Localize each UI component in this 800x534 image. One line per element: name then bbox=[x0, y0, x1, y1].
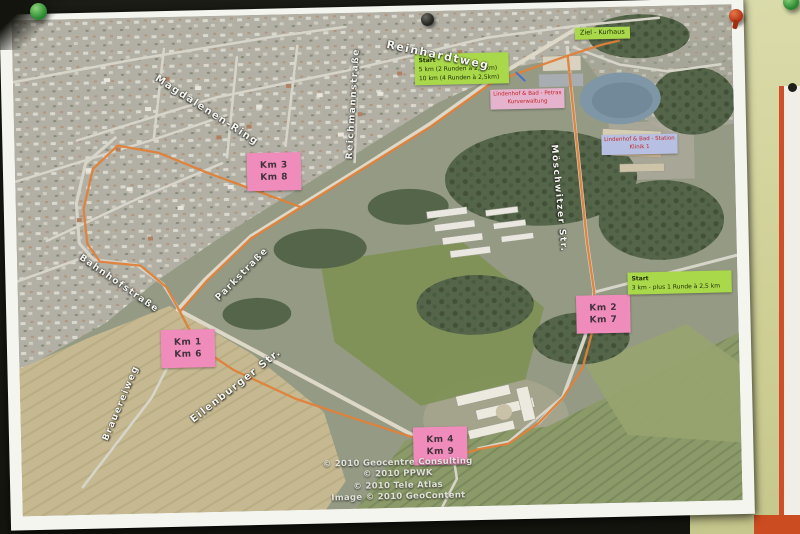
km-marker-line: Km 7 bbox=[589, 315, 617, 326]
imagery-credits: © 2010 Geocentre Consulting © 2010 PPWK … bbox=[310, 456, 487, 506]
poi-marker-kurverwaltung: Lindenhof & Bad - Petras Kurverwaltung bbox=[490, 88, 564, 110]
km-marker-line: Km 9 bbox=[426, 447, 454, 458]
adjacent-paper-sheet bbox=[779, 86, 800, 516]
km-marker-1-6: Km 1 Km 6 bbox=[161, 329, 216, 368]
start-distance-2: 10 km (4 Runden à 2,5km) bbox=[419, 72, 505, 83]
km-marker-2-7: Km 2 Km 7 bbox=[576, 295, 631, 334]
km-marker-line: Km 8 bbox=[260, 172, 288, 183]
black-pushpin-top-center bbox=[421, 13, 434, 26]
km-marker-3-8: Km 3 Km 8 bbox=[247, 152, 302, 191]
km-marker-line: Km 6 bbox=[174, 349, 202, 360]
red-pushpin-top-right bbox=[729, 9, 743, 23]
km-marker-line: Km 1 bbox=[174, 337, 202, 348]
start-marker-east: Start 3 km - plus 1 Runde à 2,5 km bbox=[627, 270, 731, 294]
km-marker-line: Km 4 bbox=[426, 435, 454, 446]
photo-of-pinned-route-map: Km 3 Km 8 Km 1 Km 6 Km 2 Km 7 Km 4 Km 9 … bbox=[0, 0, 800, 534]
printed-map-paper: Km 3 Km 8 Km 1 Km 6 Km 2 Km 7 Km 4 Km 9 … bbox=[0, 0, 755, 531]
start-distance: 3 km - plus 1 Runde à 2,5 km bbox=[632, 281, 728, 292]
adjacent-paper-corner bbox=[754, 515, 800, 534]
finish-marker: Ziel - Kurhaus bbox=[575, 27, 630, 40]
green-pushpin-top-left bbox=[30, 3, 47, 20]
finish-label: Ziel - Kurhaus bbox=[580, 28, 625, 37]
poi-line: Kurverwaltung bbox=[492, 98, 562, 108]
poi-marker-klinik: Lindenhof & Bad - Station Klinik 1 bbox=[601, 133, 677, 155]
km-marker-line: Km 3 bbox=[260, 160, 288, 171]
poi-line: Klinik 1 bbox=[604, 143, 676, 153]
satellite-map bbox=[12, 4, 743, 516]
km-marker-line: Km 2 bbox=[589, 303, 617, 314]
